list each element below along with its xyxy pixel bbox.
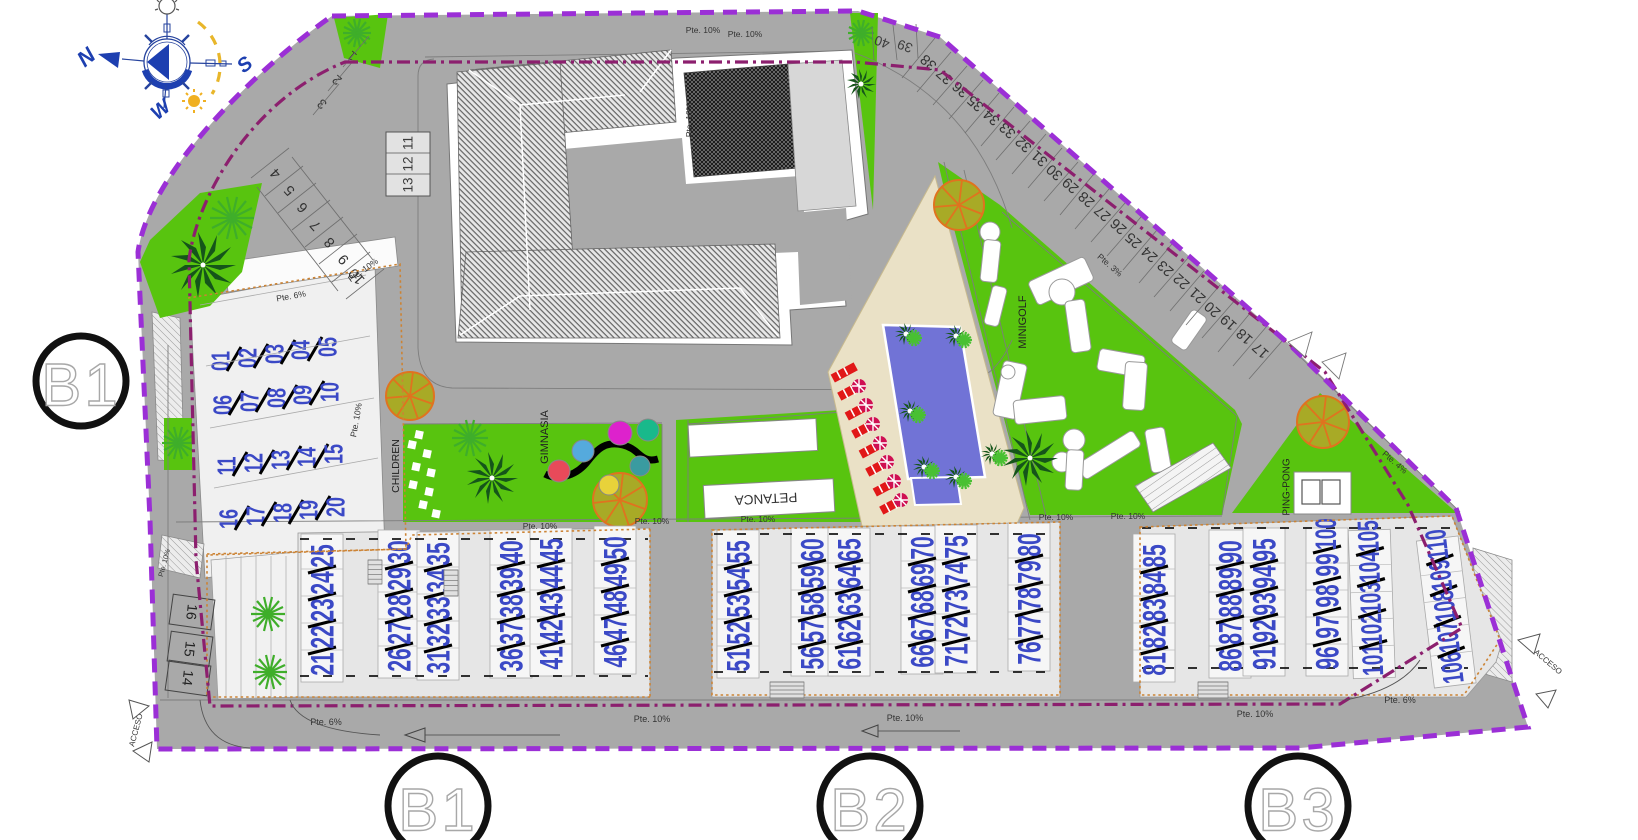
svg-text:22: 22 (304, 625, 341, 648)
svg-text:B2: B2 (830, 777, 909, 840)
svg-text:41: 41 (533, 646, 570, 669)
svg-text:11: 11 (401, 136, 416, 150)
svg-text:96: 96 (1309, 646, 1346, 669)
svg-text:60: 60 (794, 538, 831, 561)
svg-text:46: 46 (597, 644, 634, 667)
svg-text:78: 78 (1011, 587, 1048, 610)
svg-text:49: 49 (597, 563, 634, 586)
svg-text:Pte. 10%: Pte. 10% (741, 514, 776, 524)
svg-text:59: 59 (794, 565, 831, 588)
svg-text:14: 14 (179, 669, 197, 686)
svg-text:Pte. 10%: Pte. 10% (728, 29, 763, 39)
svg-text:50: 50 (597, 536, 634, 559)
svg-text:79: 79 (1011, 560, 1048, 583)
svg-text:75: 75 (938, 535, 975, 558)
svg-text:71: 71 (938, 643, 975, 666)
svg-text:62: 62 (831, 619, 868, 642)
svg-text:90: 90 (1212, 540, 1249, 563)
svg-text:Pte. 10%: Pte. 10% (1039, 512, 1074, 522)
svg-text:73: 73 (938, 589, 975, 612)
svg-text:82: 82 (1136, 625, 1173, 648)
svg-text:39: 39 (493, 567, 530, 590)
svg-text:58: 58 (794, 592, 831, 615)
svg-text:99: 99 (1309, 553, 1346, 576)
svg-text:38: 38 (493, 594, 530, 617)
svg-text:GIMNASIA: GIMNASIA (539, 409, 551, 463)
svg-text:Pte. 10%: Pte. 10% (887, 713, 924, 723)
svg-text:87: 87 (1212, 621, 1249, 644)
svg-text:15: 15 (181, 640, 199, 657)
svg-text:95: 95 (1246, 538, 1283, 561)
svg-text:B1: B1 (41, 352, 120, 419)
svg-text:85: 85 (1136, 544, 1173, 567)
svg-text:12: 12 (239, 453, 268, 473)
svg-text:100: 100 (1311, 518, 1343, 550)
svg-text:53: 53 (720, 594, 757, 617)
svg-text:65: 65 (831, 538, 868, 561)
svg-text:88: 88 (1212, 594, 1249, 617)
svg-text:Pte. 10%: Pte. 10% (684, 102, 694, 137)
svg-text:Pte. 10%: Pte. 10% (1237, 709, 1274, 719)
svg-text:27: 27 (381, 621, 418, 644)
svg-text:Pte. 10%: Pte. 10% (686, 25, 721, 35)
svg-text:76: 76 (1011, 641, 1048, 664)
svg-text:91: 91 (1246, 646, 1283, 669)
svg-text:43: 43 (533, 592, 570, 615)
svg-text:36: 36 (493, 648, 530, 671)
svg-text:16: 16 (214, 509, 243, 529)
svg-text:81: 81 (1136, 652, 1173, 675)
svg-text:CHILDREN: CHILDREN (390, 439, 402, 493)
svg-text:93: 93 (1246, 592, 1283, 615)
svg-text:77: 77 (1011, 614, 1048, 637)
svg-text:16: 16 (183, 603, 201, 620)
svg-text:31: 31 (420, 650, 457, 673)
svg-text:66: 66 (904, 644, 941, 667)
svg-text:80: 80 (1011, 533, 1048, 556)
svg-text:28: 28 (381, 594, 418, 617)
svg-text:10: 10 (315, 382, 344, 402)
svg-text:18: 18 (268, 503, 297, 523)
svg-text:105: 105 (1353, 519, 1386, 552)
svg-text:42: 42 (533, 619, 570, 642)
svg-text:Pte. 10%: Pte. 10% (523, 521, 558, 531)
svg-text:72: 72 (938, 616, 975, 639)
svg-text:29: 29 (381, 567, 418, 590)
svg-text:47: 47 (597, 617, 634, 640)
svg-text:61: 61 (831, 646, 868, 669)
svg-text:56: 56 (794, 646, 831, 669)
svg-text:PING-PONG: PING-PONG (1282, 458, 1293, 515)
svg-text:33: 33 (420, 596, 457, 619)
svg-text:68: 68 (904, 590, 941, 613)
svg-text:35: 35 (420, 542, 457, 565)
svg-text:Pte. 10%: Pte. 10% (1111, 511, 1146, 521)
svg-text:89: 89 (1212, 567, 1249, 590)
svg-text:52: 52 (720, 621, 757, 644)
svg-text:83: 83 (1136, 598, 1173, 621)
svg-text:55: 55 (720, 540, 757, 563)
svg-text:25: 25 (304, 544, 341, 567)
svg-text:20: 20 (321, 497, 350, 517)
svg-text:Pte. 10%: Pte. 10% (634, 714, 671, 724)
svg-text:30: 30 (381, 540, 418, 563)
svg-text:15: 15 (319, 444, 348, 464)
svg-text:26: 26 (381, 648, 418, 671)
svg-text:21: 21 (304, 652, 341, 675)
svg-text:Pte. 6%: Pte. 6% (1384, 695, 1416, 705)
svg-text:Pte. 10%: Pte. 10% (635, 516, 670, 526)
svg-text:08: 08 (262, 388, 291, 408)
svg-text:51: 51 (720, 648, 757, 671)
svg-text:12: 12 (401, 156, 416, 171)
svg-text:MINIGOLF: MINIGOLF (1017, 295, 1029, 348)
svg-text:37: 37 (493, 621, 530, 644)
svg-text:67: 67 (904, 617, 941, 640)
svg-text:86: 86 (1212, 648, 1249, 671)
svg-text:92: 92 (1246, 619, 1283, 642)
svg-text:32: 32 (420, 623, 457, 646)
svg-text:23: 23 (304, 598, 341, 621)
svg-text:13: 13 (401, 177, 416, 192)
svg-text:B1: B1 (398, 777, 477, 840)
svg-text:69: 69 (904, 563, 941, 586)
svg-text:98: 98 (1309, 584, 1346, 607)
svg-text:B3: B3 (1258, 777, 1337, 840)
svg-text:97: 97 (1309, 615, 1346, 638)
svg-text:05: 05 (313, 337, 342, 357)
svg-text:45: 45 (533, 538, 570, 561)
svg-text:63: 63 (831, 592, 868, 615)
svg-text:Pte. 6%: Pte. 6% (310, 717, 342, 727)
svg-text:48: 48 (597, 590, 634, 613)
svg-text:57: 57 (794, 619, 831, 642)
svg-text:40: 40 (493, 540, 530, 563)
svg-text:70: 70 (904, 536, 941, 559)
